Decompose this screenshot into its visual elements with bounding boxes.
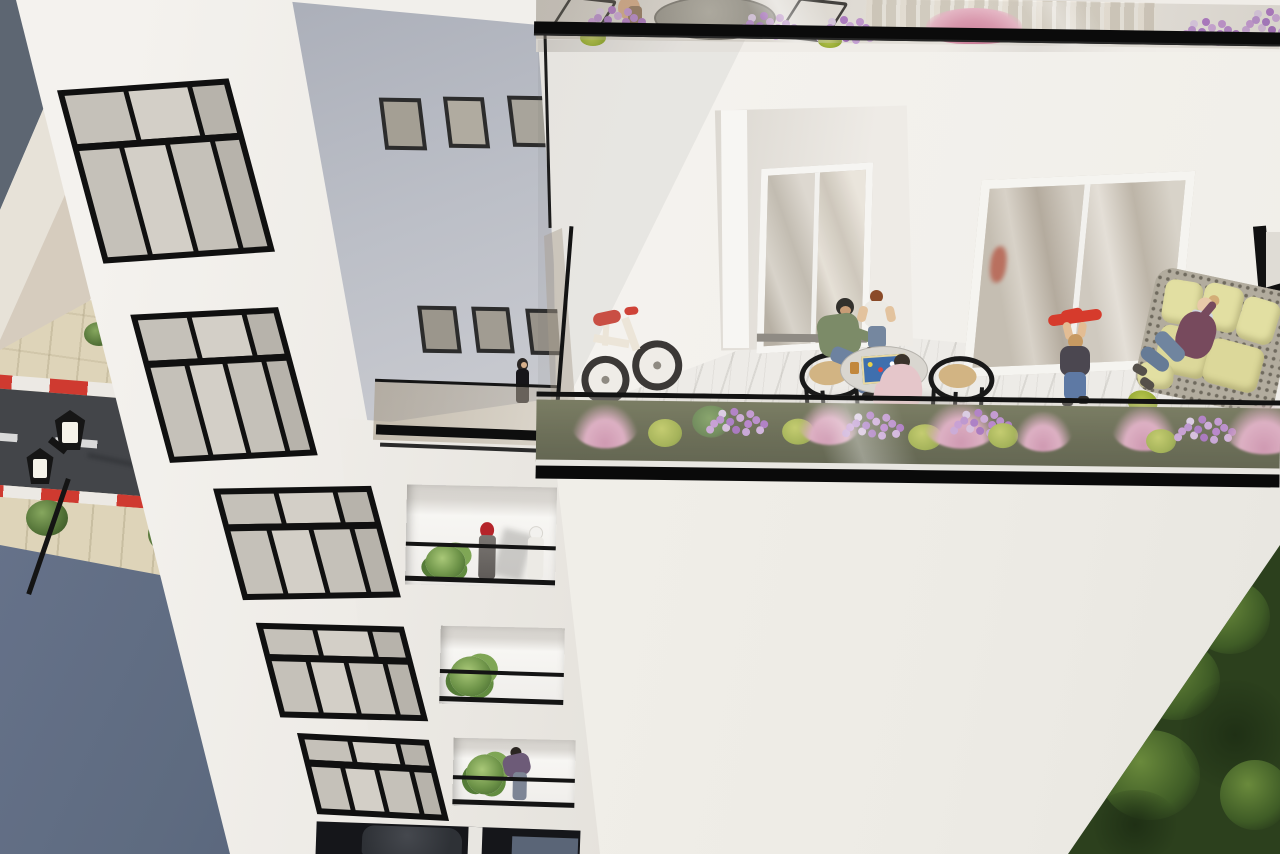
architectural-render-scene xyxy=(0,0,1280,854)
balcony-2 xyxy=(439,626,565,707)
facade-window-4 xyxy=(256,623,428,722)
small-window xyxy=(417,306,462,354)
balance-bike xyxy=(571,291,673,400)
facade-window-3 xyxy=(213,486,401,600)
parked-car xyxy=(362,825,463,854)
facade-window-5 xyxy=(297,733,449,821)
balcony-plant xyxy=(425,545,466,580)
lamp-glow xyxy=(33,459,47,478)
terrace-planter xyxy=(535,391,1280,488)
balcony-plant xyxy=(466,754,505,795)
drink-glass xyxy=(850,362,859,374)
right-edge-door-glass xyxy=(1266,232,1280,290)
balcony-plant xyxy=(449,656,492,697)
small-window xyxy=(443,97,490,149)
balcony-3 xyxy=(452,738,575,809)
bike-handlebar xyxy=(624,306,639,315)
small-window xyxy=(379,98,427,151)
garage-pillar xyxy=(467,827,482,854)
person-red-headscarf-body xyxy=(478,535,496,579)
small-window xyxy=(471,307,515,354)
balcony-railing xyxy=(439,696,563,705)
bike-frame xyxy=(593,334,630,348)
garage-interior-shape xyxy=(511,836,578,854)
lamp-glow xyxy=(62,422,78,443)
bike-saddle xyxy=(592,309,622,328)
balcony-1 xyxy=(405,484,557,587)
alcove-jamb xyxy=(721,110,749,348)
person-in-white-body xyxy=(527,537,544,579)
